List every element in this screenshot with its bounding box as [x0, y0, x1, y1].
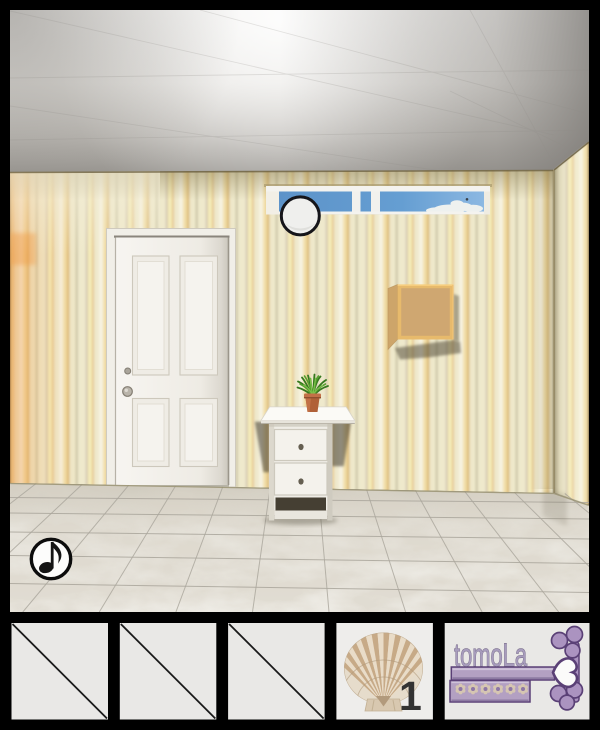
svg-text:tomoLa: tomoLa — [454, 637, 527, 673]
svg-text:1: 1 — [399, 673, 422, 719]
